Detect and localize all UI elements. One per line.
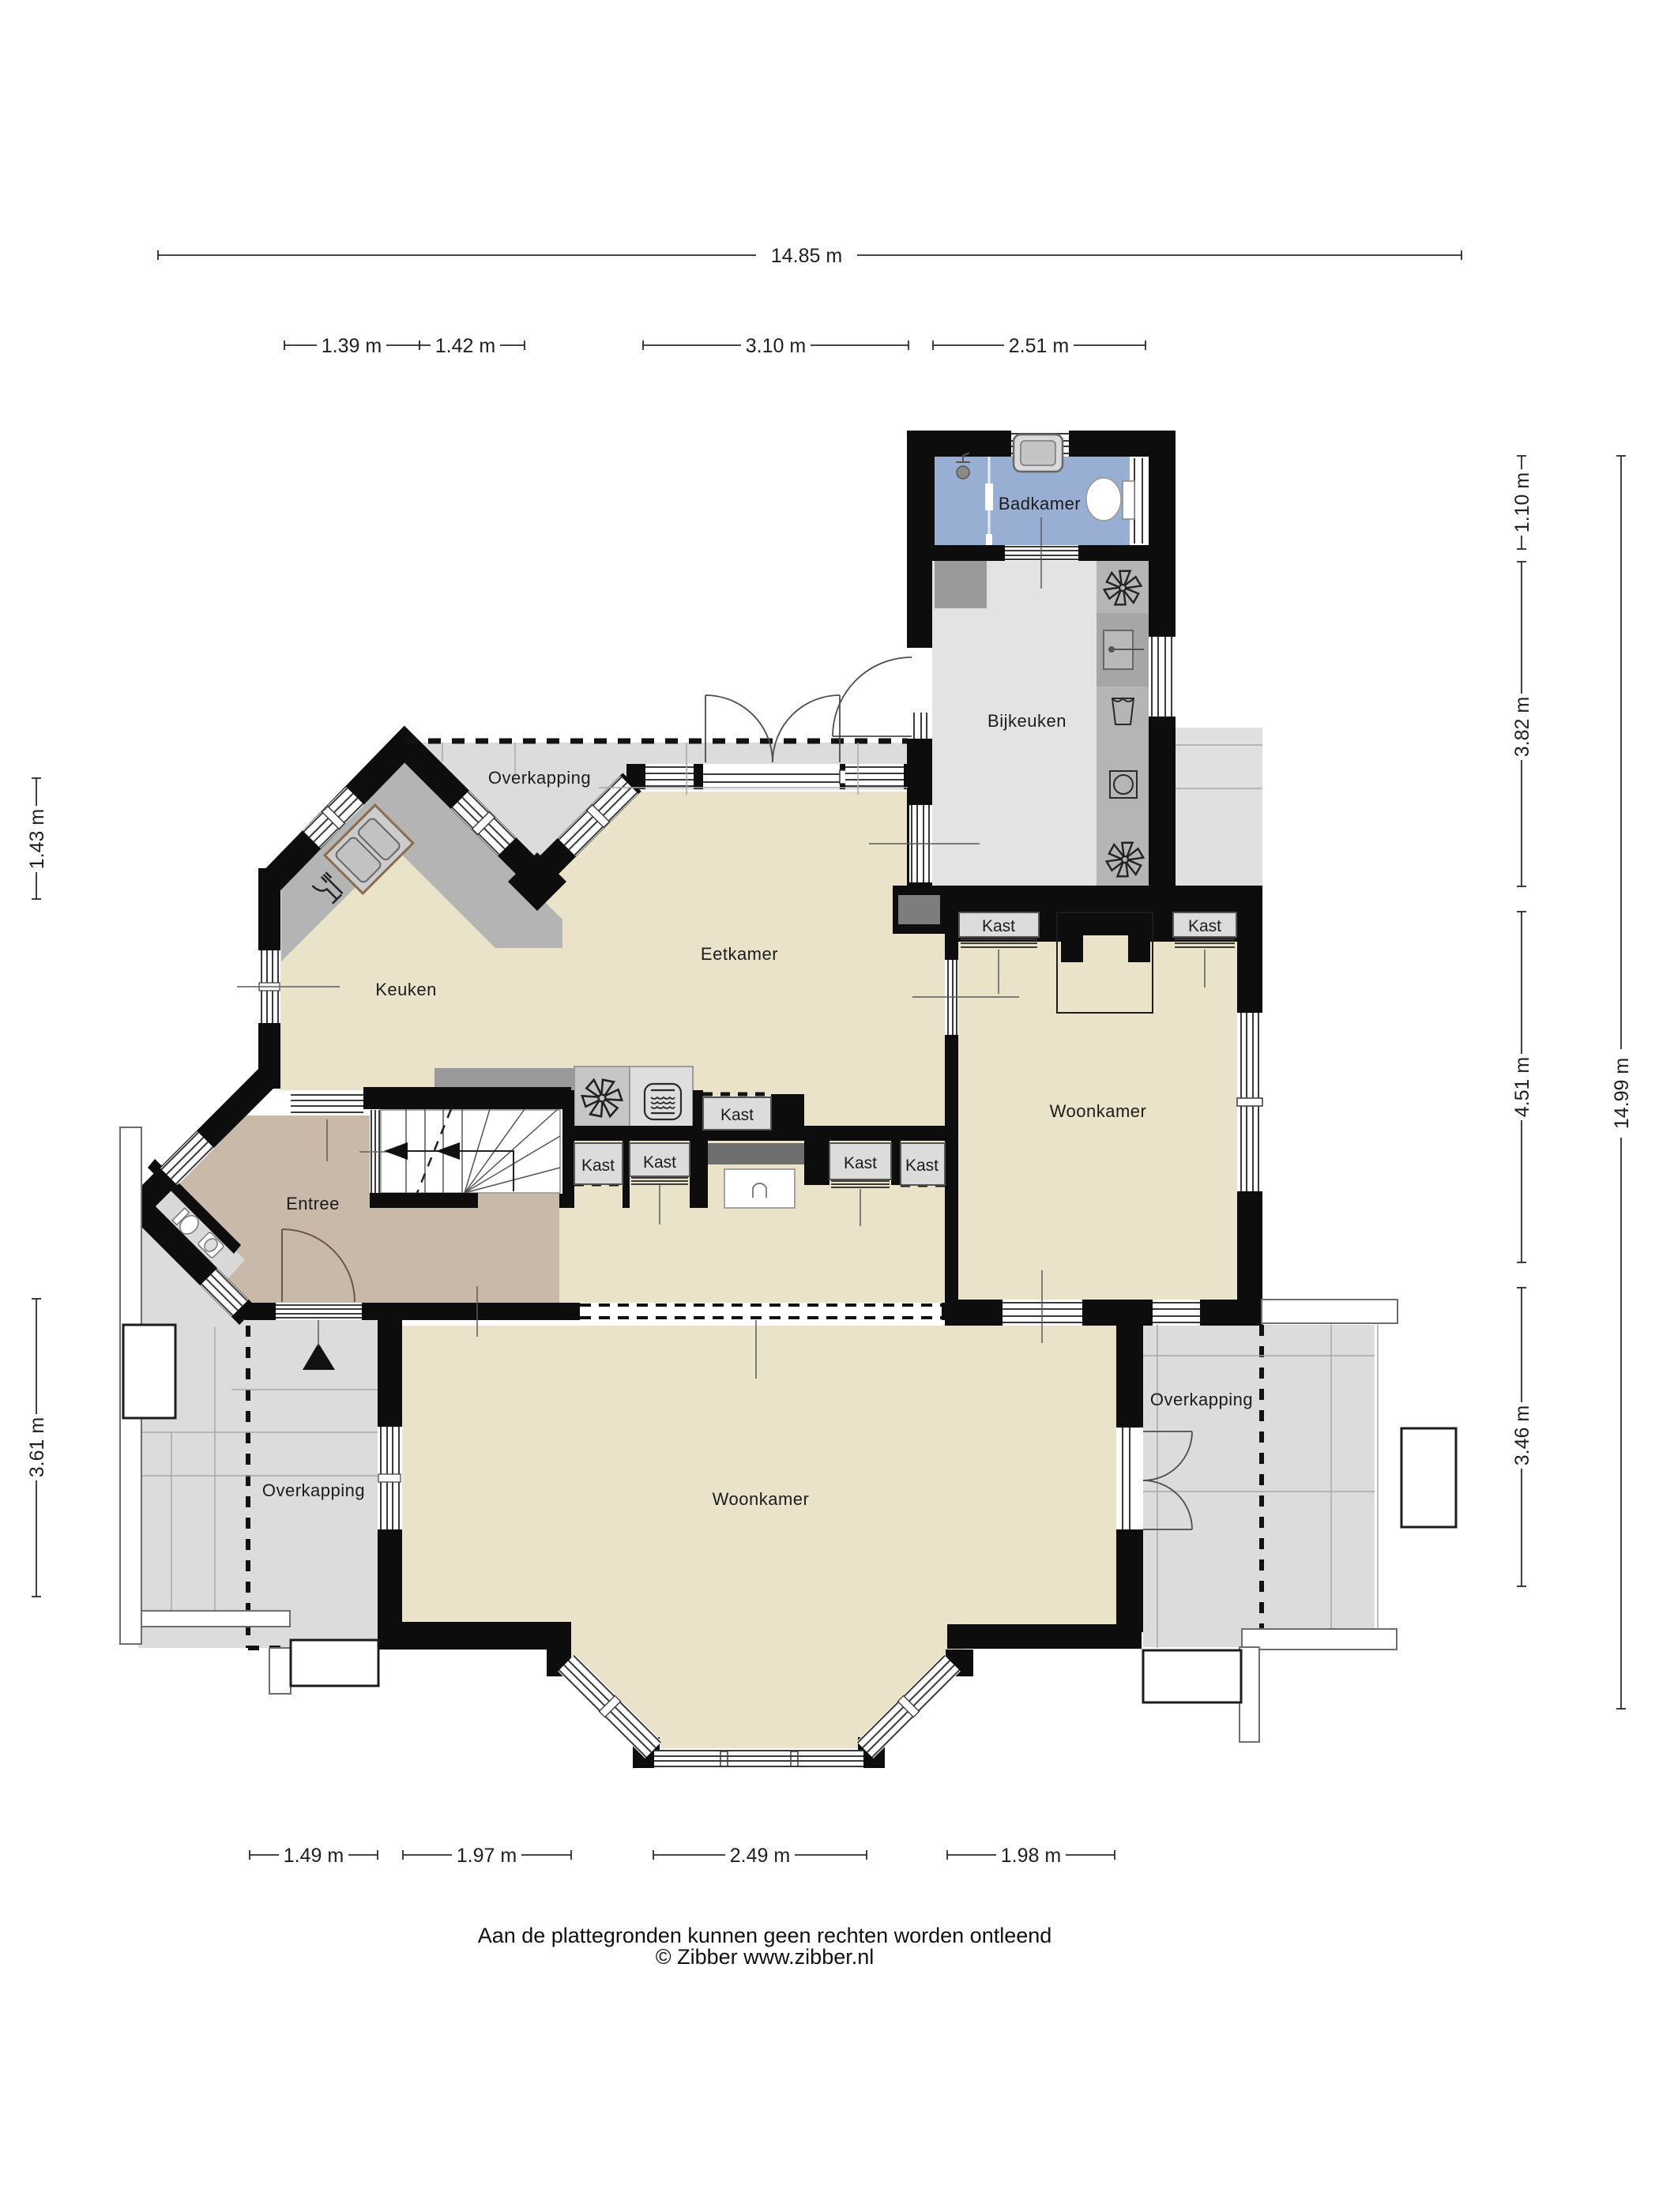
svg-text:Overkapping: Overkapping (1150, 1390, 1253, 1409)
svg-text:Aan de plattegronden kunnen ge: Aan de plattegronden kunnen geen rechten… (478, 1924, 1052, 1947)
svg-text:3.46 m: 3.46 m (1511, 1405, 1533, 1465)
svg-text:Kast: Kast (720, 1106, 754, 1124)
svg-text:Entree: Entree (286, 1194, 340, 1213)
svg-text:Woonkamer: Woonkamer (1050, 1101, 1147, 1121)
svg-text:1.43 m: 1.43 m (26, 809, 48, 869)
svg-text:Kast: Kast (1188, 917, 1221, 935)
svg-text:3.82 m: 3.82 m (1511, 697, 1533, 757)
svg-text:© Zibber www.zibber.nl: © Zibber www.zibber.nl (656, 1945, 875, 1969)
svg-text:3.61 m: 3.61 m (26, 1417, 48, 1477)
svg-text:14.99 m: 14.99 m (1611, 1058, 1633, 1129)
svg-text:Overkapping: Overkapping (488, 768, 591, 788)
svg-text:2.51 m: 2.51 m (1009, 335, 1069, 357)
svg-text:1.98 m: 1.98 m (1001, 1845, 1061, 1867)
svg-text:Kast: Kast (982, 917, 1015, 935)
svg-text:Overkapping: Overkapping (262, 1480, 365, 1500)
svg-text:1.42 m: 1.42 m (435, 335, 495, 357)
svg-text:Woonkamer: Woonkamer (713, 1489, 810, 1509)
svg-text:1.49 m: 1.49 m (284, 1845, 344, 1867)
svg-text:Badkamer: Badkamer (999, 494, 1081, 513)
svg-text:Eetkamer: Eetkamer (701, 944, 778, 964)
svg-text:14.85 m: 14.85 m (771, 245, 842, 267)
svg-text:1.39 m: 1.39 m (322, 335, 382, 357)
svg-text:Keuken: Keuken (375, 980, 437, 999)
svg-text:Kast: Kast (643, 1153, 676, 1172)
svg-text:Kast: Kast (905, 1157, 939, 1175)
svg-text:Bijkeuken: Bijkeuken (987, 711, 1066, 731)
svg-text:Kast: Kast (844, 1154, 877, 1172)
svg-text:Kast: Kast (581, 1157, 615, 1175)
svg-text:4.51 m: 4.51 m (1511, 1057, 1533, 1117)
svg-text:1.97 m: 1.97 m (457, 1845, 517, 1867)
svg-text:2.49 m: 2.49 m (730, 1845, 790, 1867)
svg-text:3.10 m: 3.10 m (746, 335, 806, 357)
svg-text:1.10 m: 1.10 m (1511, 472, 1533, 532)
